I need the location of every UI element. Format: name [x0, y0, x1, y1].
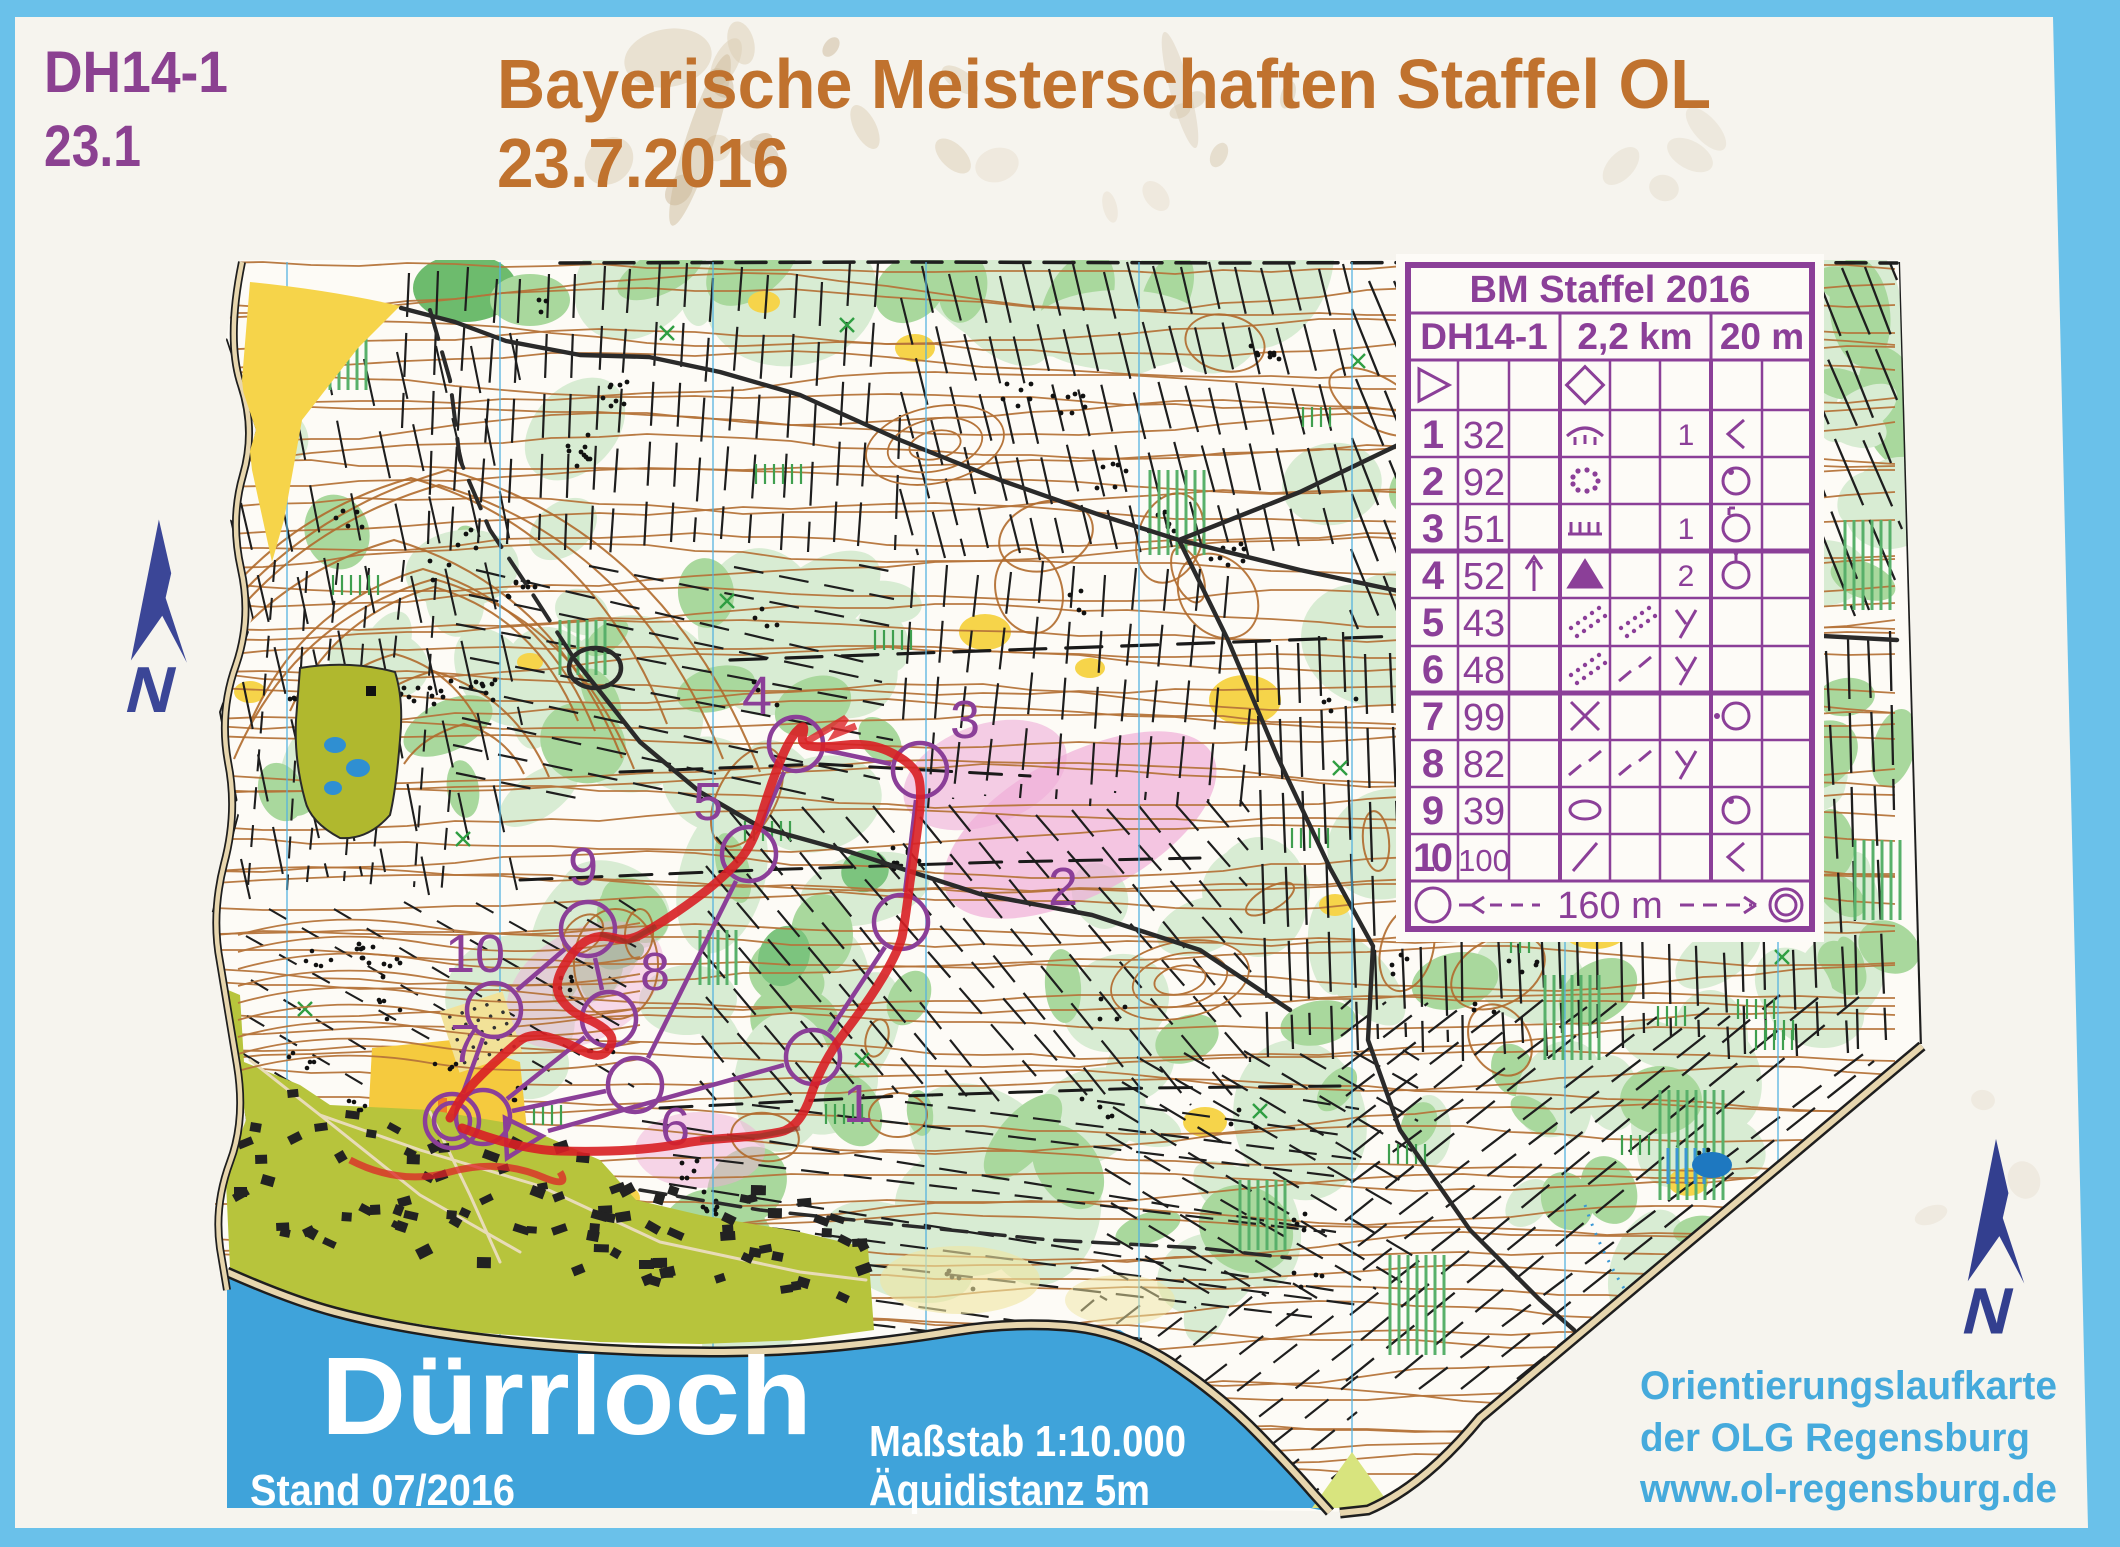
svg-text:23.1: 23.1 [44, 114, 141, 179]
svg-text:51: 51 [1463, 509, 1505, 551]
svg-text:Dürrloch: Dürrloch [321, 1335, 812, 1458]
svg-text:99: 99 [1463, 697, 1505, 739]
svg-text:100: 100 [1458, 843, 1510, 878]
svg-text:Maßstab 1:10.000: Maßstab 1:10.000 [869, 1417, 1186, 1466]
svg-text:43: 43 [1463, 603, 1505, 645]
svg-text:82: 82 [1463, 744, 1505, 786]
svg-text:DH14-1: DH14-1 [1420, 316, 1548, 357]
svg-text:7: 7 [1422, 695, 1444, 739]
svg-text:Bayerische Meisterschaften Sta: Bayerische Meisterschaften Staffel OL [497, 45, 1711, 123]
svg-text:52: 52 [1463, 556, 1505, 598]
svg-text:32: 32 [1463, 415, 1505, 457]
svg-text:39: 39 [1463, 791, 1505, 833]
svg-text:1: 1 [1422, 413, 1444, 457]
svg-text:20 m: 20 m [1720, 316, 1804, 357]
svg-text:1: 1 [1678, 419, 1695, 452]
svg-text:10: 10 [445, 924, 505, 984]
svg-text:der OLG Regensburg: der OLG Regensburg [1640, 1416, 2030, 1460]
svg-text:92: 92 [1463, 462, 1505, 504]
svg-text:3: 3 [950, 690, 980, 750]
svg-text:Äquidistanz 5m: Äquidistanz 5m [869, 1466, 1150, 1515]
svg-text:9: 9 [568, 837, 598, 897]
svg-text:6: 6 [1422, 648, 1444, 692]
svg-text:8: 8 [640, 942, 670, 1002]
svg-text:BM Staffel 2016: BM Staffel 2016 [1470, 269, 1751, 311]
svg-text:3: 3 [1422, 507, 1444, 551]
svg-text:23.7.2016: 23.7.2016 [497, 124, 789, 202]
svg-text:8: 8 [1422, 742, 1444, 786]
svg-text:DH14-1: DH14-1 [44, 40, 228, 105]
svg-text:9: 9 [1422, 789, 1444, 833]
svg-text:1: 1 [843, 1074, 873, 1134]
svg-text:5: 5 [693, 772, 723, 832]
svg-text:2: 2 [1422, 460, 1444, 504]
svg-text:www.ol-regensburg.de: www.ol-regensburg.de [1639, 1467, 2057, 1511]
svg-text:4: 4 [742, 666, 772, 726]
svg-text:2,2 km: 2,2 km [1577, 316, 1692, 357]
svg-text:7: 7 [450, 1014, 480, 1074]
svg-text:4: 4 [1422, 554, 1445, 598]
svg-text:48: 48 [1463, 650, 1505, 692]
svg-text:2: 2 [1048, 857, 1078, 917]
svg-text:10: 10 [1413, 836, 1453, 880]
svg-text:5: 5 [1422, 601, 1444, 645]
svg-text:1: 1 [1678, 513, 1695, 546]
svg-text:Stand 07/2016: Stand 07/2016 [250, 1466, 515, 1515]
svg-text:Orientierungslaufkarte: Orientierungslaufkarte [1640, 1364, 2057, 1408]
svg-text:160 m: 160 m [1557, 885, 1663, 927]
svg-text:2: 2 [1678, 560, 1695, 593]
